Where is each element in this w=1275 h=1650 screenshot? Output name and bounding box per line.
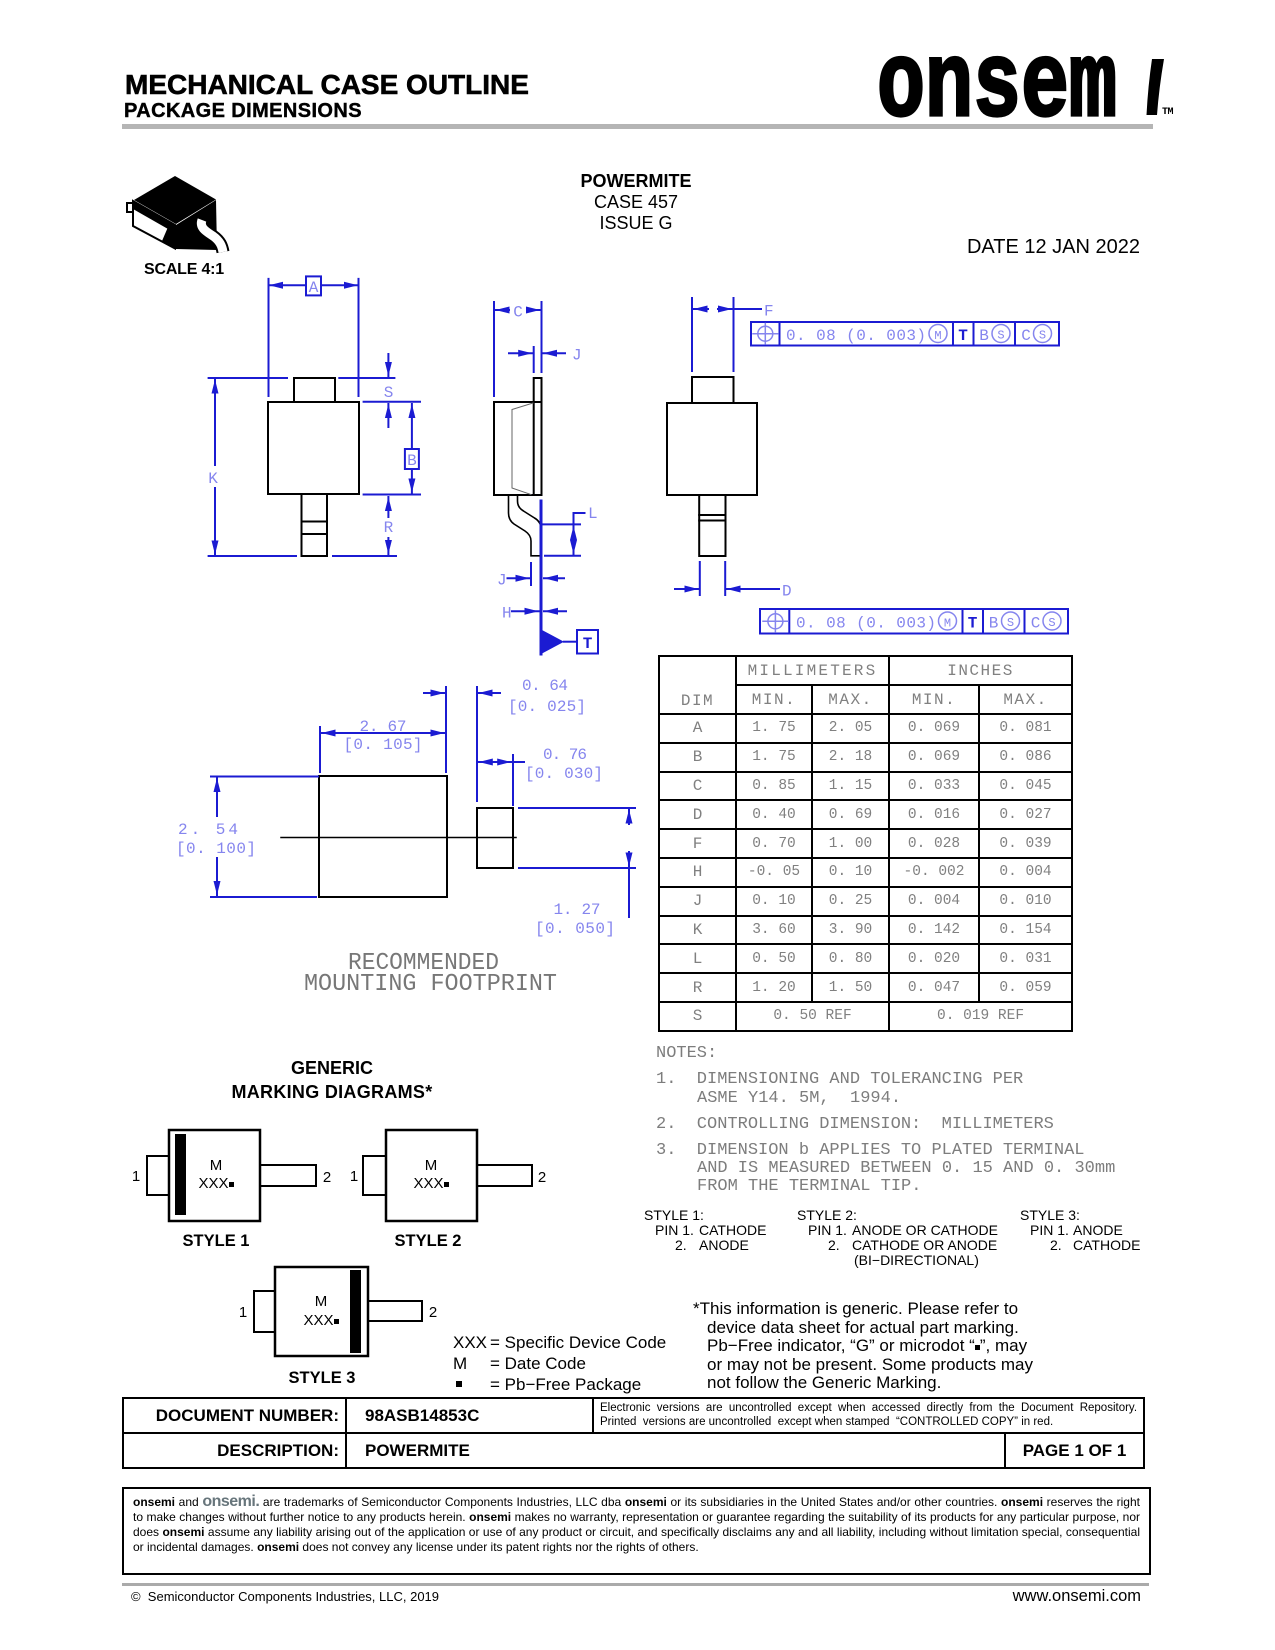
svg-text:H: H: [502, 605, 512, 623]
svg-text:[0. 025]: [0. 025]: [508, 698, 586, 716]
svg-text:T: T: [958, 327, 968, 345]
svg-text:2. 54: 2. 54: [178, 821, 238, 839]
svg-text:[0. 100]: [0. 100]: [176, 840, 256, 858]
svg-text:[0. 030]: [0. 030]: [525, 765, 603, 783]
svg-text:S: S: [997, 329, 1004, 343]
svg-text:C: C: [1021, 327, 1031, 345]
svg-text:0. 08 (0. 003): 0. 08 (0. 003): [786, 327, 926, 345]
svg-text:M: M: [944, 617, 951, 631]
svg-text:0. 08 (0. 003): 0. 08 (0. 003): [796, 615, 936, 633]
svg-text:S: S: [1039, 329, 1046, 343]
svg-text:B: B: [407, 452, 417, 470]
svg-text:T: T: [968, 615, 978, 633]
svg-text:0. 64: 0. 64: [522, 677, 568, 695]
svg-text:L: L: [588, 505, 598, 523]
svg-text:B: B: [989, 615, 999, 633]
svg-text:C: C: [1031, 615, 1041, 633]
svg-text:S: S: [384, 384, 394, 402]
svg-text:[0. 105]: [0. 105]: [344, 736, 423, 754]
svg-text:J: J: [497, 572, 507, 590]
svg-text:M: M: [934, 329, 941, 343]
svg-text:2. 67: 2. 67: [360, 718, 407, 736]
svg-text:J: J: [572, 347, 582, 365]
svg-text:S: S: [1048, 616, 1055, 630]
svg-text:C: C: [513, 304, 523, 322]
svg-text:D: D: [782, 583, 792, 601]
svg-text:K: K: [208, 470, 218, 488]
svg-text:0. 76: 0. 76: [543, 746, 587, 764]
svg-text:[0. 050]: [0. 050]: [535, 920, 615, 938]
svg-text:R: R: [384, 519, 394, 537]
svg-text:S: S: [1007, 616, 1014, 630]
svg-text:T: T: [583, 635, 593, 653]
svg-text:F: F: [764, 303, 774, 321]
svg-text:B: B: [979, 327, 989, 345]
svg-text:MOUNTING FOOTPRINT: MOUNTING FOOTPRINT: [304, 971, 557, 998]
svg-text:A: A: [309, 279, 319, 297]
svg-text:1. 27: 1. 27: [554, 901, 601, 919]
